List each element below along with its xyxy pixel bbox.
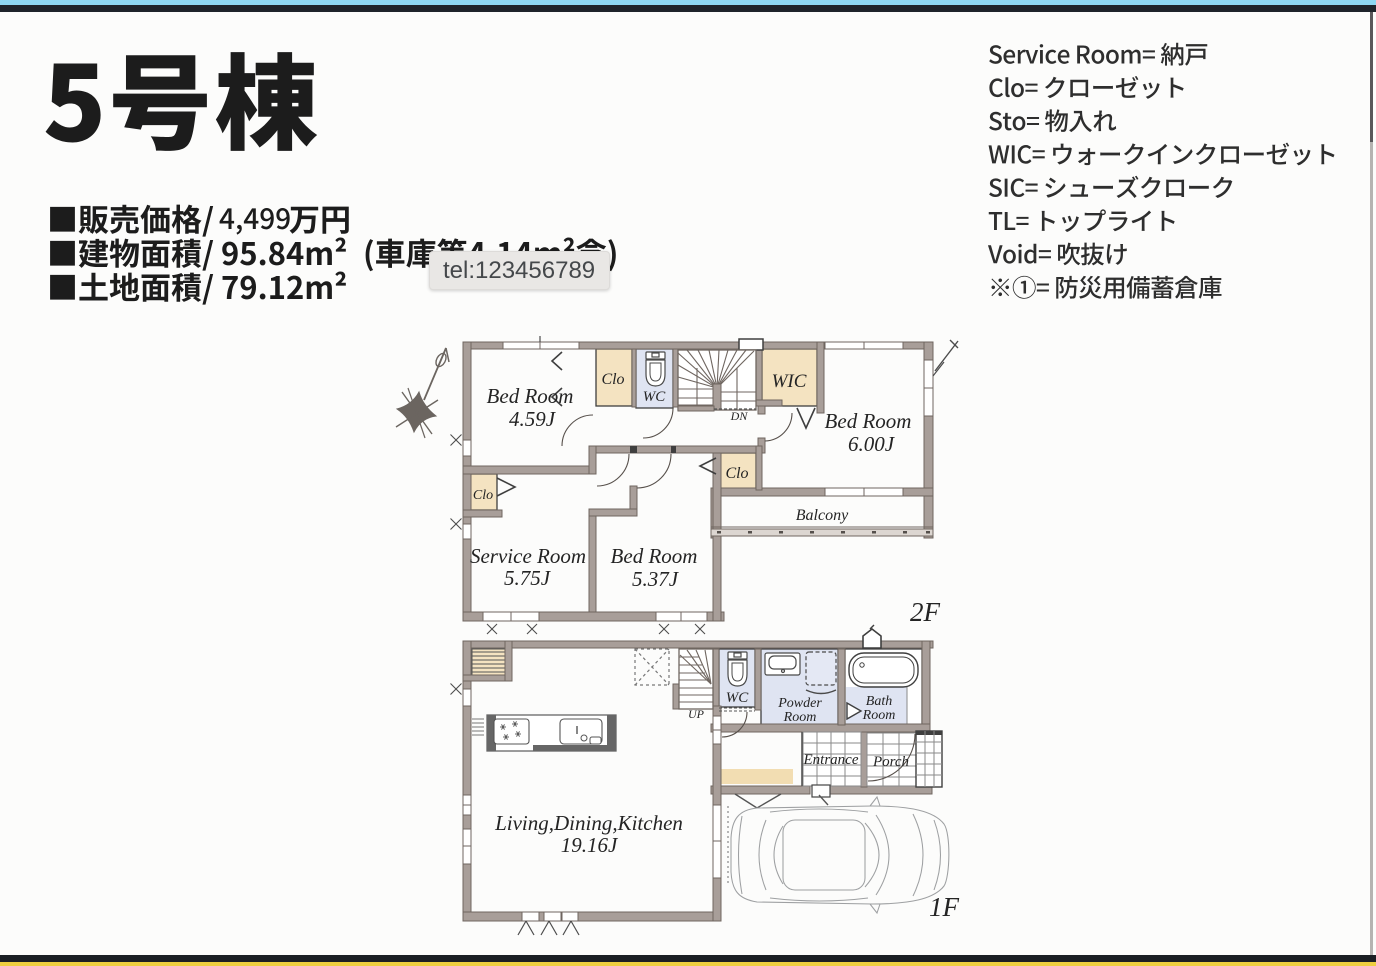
svg-text:Powder: Powder (777, 696, 822, 711)
svg-text:Clo: Clo (601, 371, 624, 388)
svg-text:Room: Room (862, 708, 896, 723)
svg-text:1F: 1F (929, 892, 960, 922)
svg-text:DN: DN (730, 409, 749, 423)
svg-text:Service Room: Service Room (470, 544, 586, 568)
svg-text:5.75J: 5.75J (504, 566, 552, 590)
svg-text:Bed Room: Bed Room (825, 409, 912, 433)
svg-text:Porch: Porch (872, 754, 909, 770)
svg-text:Bed Room: Bed Room (611, 544, 698, 568)
svg-text:Bath: Bath (866, 694, 892, 709)
svg-text:WC: WC (643, 389, 666, 405)
svg-text:Clo: Clo (473, 488, 493, 503)
svg-text:2F: 2F (910, 597, 941, 627)
svg-text:Clo: Clo (725, 465, 748, 482)
svg-text:WC: WC (726, 690, 749, 706)
svg-text:6.00J: 6.00J (848, 432, 896, 456)
svg-text:UP: UP (688, 707, 705, 721)
svg-text:5.37J: 5.37J (632, 567, 680, 591)
svg-text:Balcony: Balcony (796, 507, 849, 524)
svg-text:19.16J: 19.16J (561, 833, 619, 857)
svg-text:4.59J: 4.59J (509, 407, 557, 431)
svg-text:Room: Room (783, 710, 817, 725)
svg-text:Living,Dining,Kitchen: Living,Dining,Kitchen (494, 811, 683, 835)
svg-text:Bed Room: Bed Room (487, 384, 574, 408)
svg-text:WIC: WIC (772, 371, 807, 392)
svg-text:Entrance: Entrance (803, 752, 859, 768)
